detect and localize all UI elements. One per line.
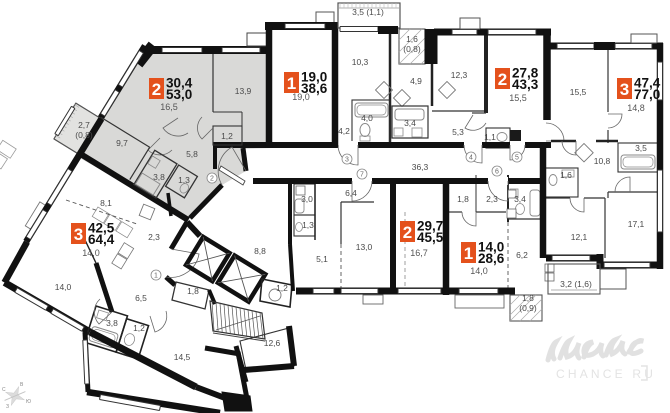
svg-text:17,1: 17,1 bbox=[628, 219, 645, 229]
svg-text:14,0: 14,0 bbox=[55, 282, 72, 292]
svg-text:3,0: 3,0 bbox=[301, 194, 313, 204]
svg-text:6,5: 6,5 bbox=[135, 293, 147, 303]
svg-text:1,3: 1,3 bbox=[178, 175, 190, 185]
svg-text:3,4: 3,4 bbox=[514, 194, 526, 204]
svg-text:(0,9): (0,9) bbox=[519, 303, 537, 313]
svg-text:8,1: 8,1 bbox=[100, 198, 112, 208]
svg-text:6,4: 6,4 bbox=[345, 188, 357, 198]
svg-text:16,7: 16,7 bbox=[410, 248, 428, 258]
svg-text:6,2: 6,2 bbox=[516, 250, 528, 260]
svg-text:45,5: 45,5 bbox=[417, 230, 444, 245]
svg-text:1,2: 1,2 bbox=[276, 283, 288, 293]
svg-text:5,3: 5,3 bbox=[452, 127, 464, 137]
svg-text:CHANCE RU: CHANCE RU bbox=[556, 367, 656, 381]
svg-text:1,3: 1,3 bbox=[302, 220, 314, 230]
svg-text:4,2: 4,2 bbox=[338, 126, 350, 136]
svg-text:5: 5 bbox=[515, 155, 519, 162]
svg-text:С: С bbox=[2, 387, 6, 393]
svg-text:4,9: 4,9 bbox=[410, 76, 422, 86]
svg-text:3,8: 3,8 bbox=[106, 318, 118, 328]
svg-text:77,0: 77,0 bbox=[634, 87, 660, 102]
svg-text:(0,8): (0,8) bbox=[403, 44, 421, 54]
svg-text:6: 6 bbox=[495, 169, 499, 176]
svg-text:2,3: 2,3 bbox=[148, 232, 160, 242]
svg-text:12,1: 12,1 bbox=[571, 232, 588, 242]
svg-text:3: 3 bbox=[74, 225, 83, 244]
svg-text:Ю: Ю bbox=[26, 399, 31, 405]
svg-text:2: 2 bbox=[152, 80, 161, 99]
svg-text:2,7: 2,7 bbox=[78, 120, 90, 130]
svg-text:28,6: 28,6 bbox=[478, 251, 505, 266]
svg-text:15,5: 15,5 bbox=[570, 87, 587, 97]
svg-text:1,8: 1,8 bbox=[522, 293, 534, 303]
svg-text:5,8: 5,8 bbox=[186, 149, 198, 159]
svg-text:15,5: 15,5 bbox=[509, 93, 527, 103]
svg-text:36,3: 36,3 bbox=[412, 162, 429, 172]
svg-text:4,0: 4,0 bbox=[361, 113, 373, 123]
svg-text:12,6: 12,6 bbox=[264, 338, 281, 348]
svg-text:3,5: 3,5 bbox=[635, 143, 647, 153]
svg-text:12,3: 12,3 bbox=[451, 70, 468, 80]
svg-text:2,3: 2,3 bbox=[486, 194, 498, 204]
svg-text:43,3: 43,3 bbox=[512, 77, 539, 92]
svg-text:З: З bbox=[6, 404, 9, 410]
svg-text:14,0: 14,0 bbox=[470, 266, 488, 276]
svg-text:1: 1 bbox=[154, 273, 158, 280]
svg-text:14,8: 14,8 bbox=[627, 103, 645, 113]
svg-text:1,8: 1,8 bbox=[457, 194, 469, 204]
svg-text:10,8: 10,8 bbox=[594, 156, 611, 166]
svg-text:3,5 (1,1): 3,5 (1,1) bbox=[352, 7, 384, 17]
svg-text:14,0: 14,0 bbox=[82, 248, 100, 258]
svg-text:5,1: 5,1 bbox=[316, 254, 328, 264]
svg-text:3,4: 3,4 bbox=[404, 118, 416, 128]
svg-text:(0,8): (0,8) bbox=[75, 130, 93, 140]
svg-text:2: 2 bbox=[498, 70, 507, 89]
svg-text:3,2 (1,6): 3,2 (1,6) bbox=[560, 279, 592, 289]
svg-text:1: 1 bbox=[464, 244, 473, 263]
svg-text:1,2: 1,2 bbox=[133, 323, 145, 333]
svg-text:3: 3 bbox=[620, 80, 629, 99]
svg-text:10,3: 10,3 bbox=[352, 57, 369, 67]
svg-text:3: 3 bbox=[345, 157, 349, 164]
svg-text:9,7: 9,7 bbox=[116, 138, 128, 148]
svg-text:1,8: 1,8 bbox=[187, 286, 199, 296]
svg-text:19,0: 19,0 bbox=[292, 92, 310, 102]
svg-text:53,0: 53,0 bbox=[166, 87, 192, 102]
svg-text:3,8: 3,8 bbox=[153, 172, 165, 182]
svg-text:14,5: 14,5 bbox=[174, 352, 191, 362]
svg-text:1,6: 1,6 bbox=[406, 34, 418, 44]
svg-text:13,9: 13,9 bbox=[235, 86, 252, 96]
svg-text:1: 1 bbox=[287, 74, 296, 93]
svg-text:2: 2 bbox=[210, 176, 214, 183]
svg-text:2: 2 bbox=[403, 223, 412, 242]
svg-text:13,0: 13,0 bbox=[356, 242, 373, 252]
svg-text:4: 4 bbox=[469, 155, 473, 162]
svg-text:1,1: 1,1 bbox=[484, 132, 496, 142]
svg-text:8,8: 8,8 bbox=[254, 246, 266, 256]
svg-text:1,2: 1,2 bbox=[221, 131, 233, 141]
svg-text:7: 7 bbox=[360, 172, 364, 179]
svg-text:64,4: 64,4 bbox=[88, 232, 115, 247]
svg-text:1,6: 1,6 bbox=[560, 170, 572, 180]
svg-text:16,5: 16,5 bbox=[160, 102, 178, 112]
